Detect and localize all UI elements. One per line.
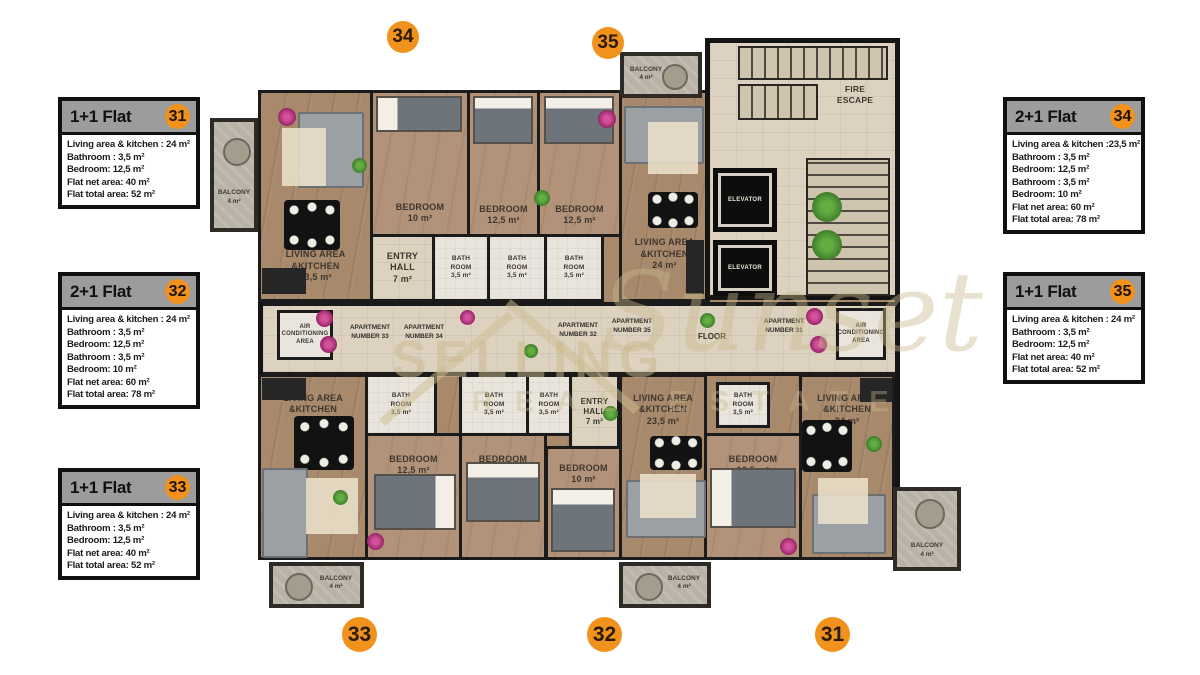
spec-line: Bedroom: 12,5 m²	[1012, 339, 1137, 350]
bed-graphic	[473, 96, 533, 144]
dining-table-graphic	[648, 192, 698, 228]
flat-32-card-body: Living area & kitchen : 24 m² Bathroom :…	[62, 310, 196, 405]
spec-line: Bathroom : 3,5 m²	[67, 152, 192, 163]
flower-icon	[460, 310, 475, 325]
spec-line: Living area & kitchen : 24 m²	[1012, 314, 1137, 325]
flower-icon	[598, 110, 616, 128]
plant-icon	[812, 192, 842, 222]
rug-graphic	[282, 128, 326, 186]
bed-graphic	[551, 488, 615, 552]
elevator-cab: ELEVATOR	[718, 245, 772, 291]
plant-icon	[524, 344, 538, 358]
spec-line: Living area & kitchen : 24 m²	[67, 139, 192, 150]
air-conditioning-area-right: AIR CONDITIONING AREA	[836, 308, 886, 360]
room-label: LIVING AREA &KITCHEN 23,5 m²	[633, 393, 693, 427]
flat-33-spec-card: 1+1 Flat 33 Living area & kitchen : 24 m…	[58, 468, 200, 580]
rug-graphic	[306, 478, 358, 534]
elevator-2: ELEVATOR	[713, 240, 777, 296]
balcony-table-graphic	[635, 573, 663, 601]
plant-icon	[603, 406, 618, 421]
room-label: ENTRY HALL 7 m²	[387, 251, 418, 285]
rug-graphic	[648, 122, 698, 174]
flower-icon	[316, 310, 333, 327]
room-bathroom-top-1: BATH ROOM 3,5 m²	[432, 234, 490, 302]
plant-icon	[812, 230, 842, 260]
bed-graphic	[466, 462, 540, 522]
bed-graphic	[710, 468, 796, 528]
flat-33-number-badge: 33	[165, 475, 190, 500]
room-bathroom-top-3: BATH ROOM 3,5 m²	[544, 234, 604, 302]
spec-line: Flat net area: 60 m²	[1012, 202, 1137, 213]
flower-icon	[278, 108, 296, 126]
rug-graphic	[640, 474, 696, 518]
flat-35-marker: 35	[592, 27, 624, 59]
flat-33-card-header: 1+1 Flat 33	[62, 472, 196, 506]
elevator-label: ELEVATOR	[728, 197, 762, 203]
room-label: BATH ROOM 3,5 m²	[563, 255, 584, 280]
balcony-table-graphic	[285, 573, 313, 601]
flower-icon	[810, 336, 827, 353]
room-label: BEDROOM 10 m²	[559, 463, 607, 486]
flat-35-card-header: 1+1 Flat 35	[1007, 276, 1141, 310]
flower-icon	[367, 533, 384, 550]
spec-line: Bedroom: 10 m²	[1012, 189, 1137, 200]
balcony-label: BALCONY 4 m²	[629, 66, 663, 83]
plant-icon	[866, 436, 882, 452]
balcony-apt32: BALCONY 4 m²	[619, 562, 711, 608]
flat-31-number-badge: 31	[165, 104, 190, 129]
flower-icon	[806, 308, 823, 325]
balcony-apt34: BALCONY 4 m²	[210, 118, 258, 232]
flat-34-card-header: 2+1 Flat 34	[1007, 101, 1141, 135]
apartment-31-door-label: APARTMENT NUMBER 31	[756, 318, 812, 336]
sofa-graphic	[262, 468, 308, 558]
flat-31-spec-card: 1+1 Flat 31 Living area & kitchen : 24 m…	[58, 97, 200, 209]
spec-line: Flat net area: 40 m²	[1012, 352, 1137, 363]
apartment-35-door-label: APARTMENT NUMBER 35	[606, 318, 658, 336]
spec-line: Bathroom : 3,5 m²	[67, 523, 192, 534]
spec-line: Flat net area: 40 m²	[67, 177, 192, 188]
kitchen-counter-graphic	[262, 268, 306, 294]
spec-line: Living area & kitchen :23,5 m²	[1012, 139, 1137, 150]
spec-line: Bathroom : 3,5 m²	[1012, 152, 1137, 163]
spec-line: Bedroom: 12,5 m²	[1012, 164, 1137, 175]
spec-line: Flat net area: 60 m²	[67, 377, 192, 388]
balcony-table-graphic	[915, 499, 945, 529]
flat-32-number-badge: 32	[165, 279, 190, 304]
balcony-label: BALCONY 4 m²	[897, 542, 957, 559]
flat-32-marker: 32	[587, 617, 622, 652]
floor-plan-page: 1+1 Flat 31 Living area & kitchen : 24 m…	[0, 0, 1200, 675]
kitchen-counter-graphic	[860, 378, 892, 402]
plant-icon	[352, 158, 367, 173]
spec-line: Flat net area: 40 m²	[67, 548, 192, 559]
rug-graphic	[818, 478, 868, 524]
fire-escape-stairs-graphic	[738, 46, 888, 80]
room-label: BATH ROOM 3,5 m²	[506, 255, 527, 280]
flat-34-card-body: Living area & kitchen :23,5 m² Bathroom …	[1007, 135, 1141, 230]
room-label: BEDROOM 10 m²	[396, 202, 444, 225]
spec-line: Bathroom : 3,5 m²	[1012, 177, 1137, 188]
balcony-label: BALCONY 4 m²	[214, 189, 254, 206]
flat-31-card-body: Living area & kitchen : 24 m² Bathroom :…	[62, 135, 196, 205]
flower-icon	[780, 538, 797, 555]
flat-31-type: 1+1 Flat	[70, 107, 131, 127]
spec-line: Bathroom : 3,5 m²	[67, 352, 192, 363]
spec-line: Bedroom: 12,5 m²	[67, 535, 192, 546]
spec-line: Flat total area: 52 m²	[67, 189, 192, 200]
spec-line: Bathroom : 3,5 m²	[67, 327, 192, 338]
flat-34-number-badge: 34	[1110, 104, 1135, 129]
spec-line: Flat total area: 78 m²	[67, 389, 192, 400]
plant-icon	[700, 313, 715, 328]
spec-line: Flat total area: 78 m²	[1012, 214, 1137, 225]
room-bathroom-top-2: BATH ROOM 3,5 m²	[487, 234, 547, 302]
flat-32-type: 2+1 Flat	[70, 282, 131, 302]
apartment-33-door-label: APARTMENT NUMBER 33	[344, 324, 396, 342]
flat-34-type: 2+1 Flat	[1015, 107, 1076, 127]
spec-line: Flat total area: 52 m²	[67, 560, 192, 571]
flat-34-spec-card: 2+1 Flat 34 Living area & kitchen :23,5 …	[1003, 97, 1145, 234]
spec-line: Bathroom : 3,5 m²	[1012, 327, 1137, 338]
flat-33-type: 1+1 Flat	[70, 478, 131, 498]
balcony-label: BALCONY 4 m²	[665, 575, 703, 592]
balcony-apt33: BALCONY 4 m²	[269, 562, 364, 608]
kitchen-counter-graphic	[686, 240, 704, 294]
flat-34-marker: 34	[387, 21, 419, 53]
flower-icon	[320, 336, 337, 353]
elevator-1: ELEVATOR	[713, 168, 777, 232]
plant-icon	[333, 490, 348, 505]
room-apt31-bathroom: BATH ROOM 3,5 m²	[716, 382, 770, 428]
flat-31-card-header: 1+1 Flat 31	[62, 101, 196, 135]
room-label: AIR CONDITIONING AREA	[838, 323, 885, 346]
main-stairs-graphic	[806, 158, 890, 296]
room-label: BATH ROOM 3,5 m²	[538, 392, 559, 417]
kitchen-counter-graphic	[262, 378, 306, 400]
flat-35-card-body: Living area & kitchen : 24 m² Bathroom :…	[1007, 310, 1141, 380]
apartment-32-door-label: APARTMENT NUMBER 32	[552, 322, 604, 340]
dining-table-graphic	[294, 416, 354, 470]
bed-graphic	[374, 474, 456, 530]
fire-escape-stairs-graphic	[738, 84, 818, 120]
balcony-apt31: BALCONY 4 m²	[893, 487, 961, 571]
balcony-apt35: BALCONY 4 m²	[620, 52, 702, 98]
spec-line: Flat total area: 52 m²	[1012, 364, 1137, 375]
flat-35-spec-card: 1+1 Flat 35 Living area & kitchen : 24 m…	[1003, 272, 1145, 384]
flat-32-card-header: 2+1 Flat 32	[62, 276, 196, 310]
room-label: BEDROOM 12,5 m²	[479, 204, 527, 227]
flat-33-card-body: Living area & kitchen : 24 m² Bathroom :…	[62, 506, 196, 576]
elevator-cab: ELEVATOR	[718, 173, 772, 227]
flat-35-type: 1+1 Flat	[1015, 282, 1076, 302]
flat-31-marker: 31	[815, 617, 850, 652]
balcony-table-graphic	[223, 138, 251, 166]
room-apt32-bathroom-1: BATH ROOM 3,5 m²	[459, 374, 529, 436]
spec-line: Living area & kitchen : 24 m²	[67, 314, 192, 325]
room-apt33-bathroom: BATH ROOM 3,5 m²	[365, 374, 437, 436]
plant-icon	[534, 190, 550, 206]
flat-32-spec-card: 2+1 Flat 32 Living area & kitchen : 24 m…	[58, 272, 200, 409]
elevator-label: ELEVATOR	[728, 265, 762, 271]
apartment-34-door-label: APARTMENT NUMBER 34	[398, 324, 450, 342]
spec-line: Bedroom: 12,5 m²	[67, 164, 192, 175]
room-label: BEDROOM 12,5 m²	[555, 204, 603, 227]
flat-35-number-badge: 35	[1110, 279, 1135, 304]
dining-table-graphic	[284, 200, 340, 250]
bed-graphic	[376, 96, 462, 132]
balcony-label: BALCONY 4 m²	[317, 575, 355, 592]
spec-line: Bedroom: 10 m²	[67, 364, 192, 375]
room-label: BATH ROOM 3,5 m²	[483, 392, 504, 417]
fire-escape-label: FIRE ESCAPE	[822, 84, 888, 105]
dining-table-graphic	[650, 436, 702, 470]
room-label: BATH ROOM 3,5 m²	[732, 392, 753, 417]
spec-line: Living area & kitchen : 24 m²	[67, 510, 192, 521]
room-label: BATH ROOM 3,5 m²	[450, 255, 471, 280]
room-apt32-bathroom-2: BATH ROOM 3,5 m²	[526, 374, 572, 436]
balcony-table-graphic	[662, 64, 688, 90]
room-apt34-entry-hall: ENTRY HALL 7 m²	[370, 234, 435, 302]
dining-table-graphic	[802, 420, 852, 472]
room-label: BATH ROOM 3,5 m²	[390, 392, 411, 417]
floor-label: FLOOR	[688, 332, 736, 343]
spec-line: Bedroom: 12,5 m²	[67, 339, 192, 350]
flat-33-marker: 33	[342, 617, 377, 652]
